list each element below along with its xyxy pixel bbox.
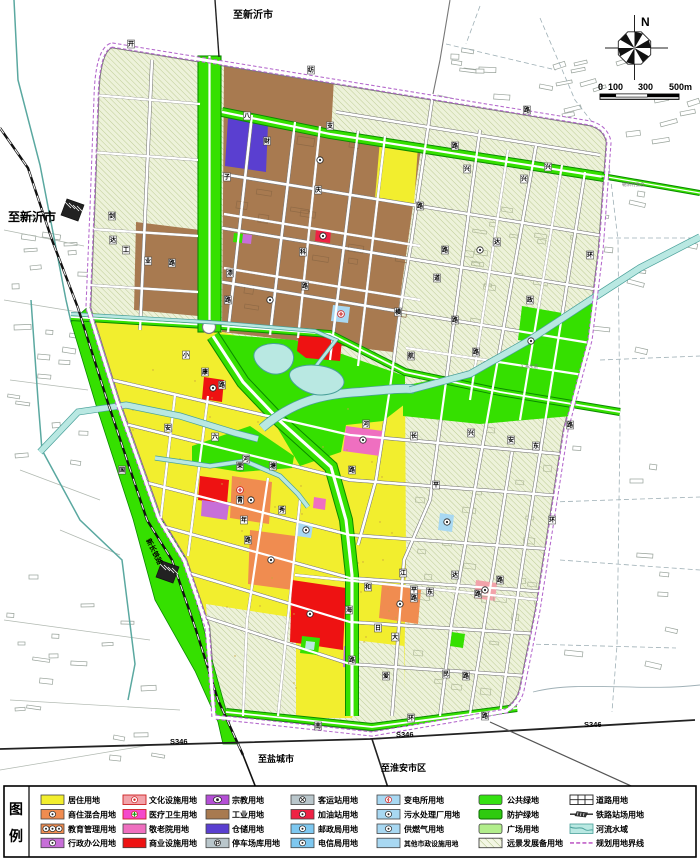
svg-text:公共绿地: 公共绿地 — [507, 795, 539, 805]
svg-text:财: 财 — [263, 137, 270, 145]
svg-text:政: 政 — [527, 296, 534, 304]
svg-text:入海水道: 入海水道 — [520, 363, 538, 370]
svg-text:路: 路 — [225, 296, 232, 304]
svg-text:剑: 剑 — [108, 212, 115, 220]
svg-text:居住用地: 居住用地 — [68, 795, 100, 805]
svg-text:商业设施用地: 商业设施用地 — [149, 838, 197, 848]
svg-text:八: 八 — [243, 113, 251, 120]
svg-text:至新沂市: 至新沂市 — [8, 209, 56, 224]
svg-text:长: 长 — [411, 432, 418, 440]
svg-text:远景发展备用地: 远景发展备用地 — [507, 838, 563, 848]
svg-text:商住混合用地: 商住混合用地 — [68, 810, 116, 820]
svg-text:安: 安 — [508, 436, 514, 444]
svg-text:仓储用地: 仓储用地 — [231, 824, 264, 834]
svg-text:年: 年 — [241, 516, 247, 524]
svg-text:航: 航 — [408, 352, 414, 360]
svg-text:至淮安市区: 至淮安市区 — [381, 762, 426, 773]
svg-text:加油站用地: 加油站用地 — [317, 810, 358, 820]
svg-text:南: 南 — [315, 722, 321, 730]
svg-text:环: 环 — [408, 714, 414, 722]
svg-text:六: 六 — [212, 433, 218, 441]
svg-text:朝阳村委会: 朝阳村委会 — [622, 181, 645, 188]
svg-text:路: 路 — [567, 421, 574, 429]
svg-text:爱: 爱 — [383, 672, 389, 680]
svg-text:横: 横 — [395, 308, 402, 316]
svg-text:达: 达 — [110, 236, 116, 244]
svg-text:电信局用地: 电信局用地 — [318, 838, 358, 848]
svg-text:500m: 500m — [669, 82, 692, 92]
svg-text:P: P — [215, 840, 220, 847]
svg-text:庆: 庆 — [314, 186, 321, 194]
svg-text:例: 例 — [9, 828, 23, 844]
svg-text:教育管理用地: 教育管理用地 — [67, 824, 116, 834]
svg-text:道路用地: 道路用地 — [596, 795, 628, 805]
svg-text:路: 路 — [245, 536, 252, 544]
svg-text:S346: S346 — [584, 720, 602, 729]
svg-text:N: N — [641, 15, 650, 29]
svg-text:东: 东 — [533, 442, 539, 450]
svg-text:0: 0 — [598, 82, 603, 92]
svg-text:敬老院用地: 敬老院用地 — [148, 824, 189, 834]
svg-text:路: 路 — [411, 594, 418, 602]
svg-text:东: 东 — [427, 588, 433, 596]
svg-text:安: 安 — [165, 424, 171, 432]
svg-text:医疗卫生用地: 医疗卫生用地 — [149, 810, 197, 820]
svg-text:100: 100 — [608, 82, 623, 92]
svg-text:供燃气用地: 供燃气用地 — [403, 824, 444, 834]
svg-text:图: 图 — [9, 801, 23, 817]
svg-text:业: 业 — [145, 257, 151, 265]
svg-text:河: 河 — [243, 455, 249, 463]
svg-text:道: 道 — [434, 274, 440, 282]
svg-text:S346: S346 — [396, 730, 414, 739]
svg-text:客运站用地: 客运站用地 — [317, 795, 358, 805]
svg-text:工业用地: 工业用地 — [232, 810, 264, 820]
svg-text:和: 和 — [364, 583, 371, 591]
svg-text:路: 路 — [463, 672, 470, 680]
svg-text:河流水域: 河流水域 — [596, 824, 628, 834]
svg-text:平: 平 — [411, 587, 417, 594]
svg-text:路: 路 — [482, 712, 489, 720]
svg-text:铁路站场用地: 铁路站场用地 — [596, 810, 644, 820]
svg-text:兴: 兴 — [464, 165, 470, 173]
svg-text:路: 路 — [452, 142, 459, 150]
svg-text:至盐城市: 至盐城市 — [258, 753, 294, 764]
svg-text:环: 环 — [587, 251, 593, 259]
svg-text:路: 路 — [169, 259, 176, 267]
svg-text:路: 路 — [349, 466, 356, 474]
svg-text:广场用地: 广场用地 — [507, 824, 539, 834]
svg-text:河: 河 — [363, 420, 369, 428]
svg-text:国: 国 — [119, 466, 125, 474]
svg-text:S346: S346 — [170, 737, 188, 746]
svg-text:纺: 纺 — [308, 66, 314, 74]
svg-text:平: 平 — [433, 482, 439, 489]
svg-text:规划用地界线: 规划用地界线 — [596, 838, 644, 848]
svg-text:变电所用地: 变电所用地 — [404, 795, 444, 805]
svg-text:兴: 兴 — [545, 163, 551, 171]
svg-text:江: 江 — [400, 569, 406, 577]
svg-text:支: 支 — [326, 122, 334, 130]
svg-text:康: 康 — [201, 368, 209, 376]
svg-text:荣: 荣 — [236, 462, 243, 470]
svg-text:海: 海 — [346, 606, 352, 614]
svg-text:民: 民 — [443, 670, 449, 678]
svg-text:路: 路 — [417, 202, 424, 210]
svg-text:工: 工 — [123, 247, 129, 254]
svg-text:停车场库用地: 停车场库用地 — [232, 838, 280, 848]
svg-text:路: 路 — [475, 590, 482, 598]
svg-text:秀: 秀 — [278, 506, 286, 514]
svg-text:兴: 兴 — [521, 175, 527, 183]
svg-text:科: 科 — [300, 248, 306, 256]
svg-text:路: 路 — [497, 576, 504, 584]
svg-text:小: 小 — [182, 351, 189, 359]
svg-text:环: 环 — [549, 516, 555, 524]
svg-text:路: 路 — [442, 246, 449, 254]
svg-text:路: 路 — [349, 656, 356, 664]
svg-text:路: 路 — [302, 282, 309, 290]
svg-text:污水处理厂用地: 污水处理厂用地 — [404, 810, 460, 820]
svg-text:文化设施用地: 文化设施用地 — [149, 795, 197, 805]
svg-text:行政办公用地: 行政办公用地 — [67, 838, 116, 848]
svg-text:子: 子 — [224, 174, 230, 181]
svg-text:达: 达 — [452, 571, 458, 579]
svg-text:漴: 漴 — [227, 269, 233, 277]
svg-text:兴: 兴 — [468, 429, 474, 437]
svg-text:路: 路 — [452, 316, 459, 324]
svg-text:日: 日 — [375, 625, 381, 632]
svg-text:塘: 塘 — [270, 462, 276, 470]
svg-text:达: 达 — [494, 238, 500, 246]
svg-text:300: 300 — [638, 82, 653, 92]
svg-text:路: 路 — [524, 106, 531, 114]
svg-text:青: 青 — [237, 496, 243, 504]
svg-text:邮政局用地: 邮政局用地 — [318, 824, 358, 834]
svg-text:路: 路 — [219, 381, 226, 389]
svg-text:至新沂市: 至新沂市 — [233, 8, 273, 21]
svg-text:大: 大 — [392, 633, 398, 641]
svg-text:路: 路 — [473, 348, 480, 356]
svg-text:宗教用地: 宗教用地 — [232, 795, 264, 805]
svg-text:防护绿地: 防护绿地 — [507, 810, 539, 820]
svg-text:其他市政设施用地: 其他市政设施用地 — [404, 839, 459, 848]
svg-text:开: 开 — [128, 40, 134, 48]
